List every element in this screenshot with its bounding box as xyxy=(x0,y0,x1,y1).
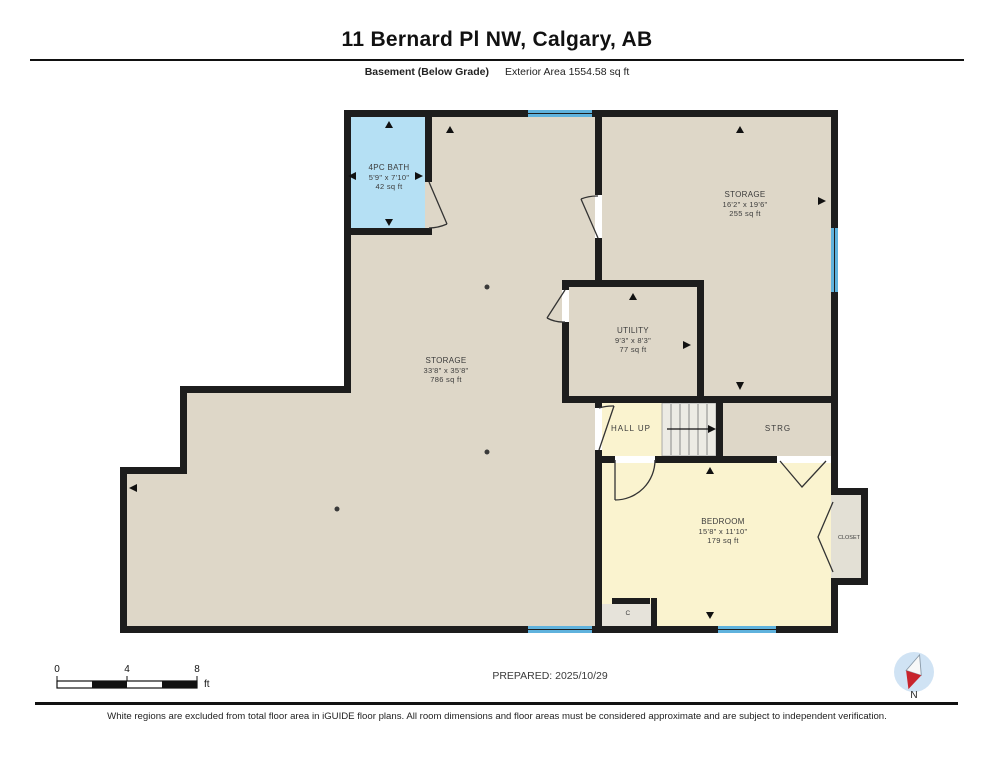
room-dims: 33'8" x 35'8" xyxy=(423,366,468,376)
room-name: STRG xyxy=(765,424,791,434)
compass-icon xyxy=(894,652,934,692)
floorplan-drawing xyxy=(0,0,994,768)
compass-north-label: N xyxy=(906,690,922,701)
prepared-date: PREPARED: 2025/10/29 xyxy=(455,670,645,682)
room-dims: 16'2" x 19'6" xyxy=(722,200,767,210)
room-name: HALL UP xyxy=(611,424,651,434)
scale-unit-label: ft xyxy=(204,679,210,690)
room-area: 255 sq ft xyxy=(722,209,767,219)
room-dims: 5'9" x 7'10" xyxy=(369,173,410,183)
room-label-closet-c: C xyxy=(626,609,631,619)
room-area: 786 sq ft xyxy=(423,375,468,385)
scale-bar xyxy=(57,676,197,688)
room-name: UTILITY xyxy=(615,326,651,336)
room-label-utility: UTILITY 9'3" x 8'3" 77 sq ft xyxy=(615,326,651,355)
room-dims: 15'8" x 11'10" xyxy=(699,527,748,537)
scale-tick-0: 0 xyxy=(54,664,60,675)
room-area: 179 sq ft xyxy=(699,536,748,546)
room-label-closet: CLOSET xyxy=(838,534,860,544)
room-name: STORAGE xyxy=(423,356,468,366)
room-dims: 9'3" x 8'3" xyxy=(615,336,651,346)
room-label-bedroom: BEDROOM 15'8" x 11'10" 179 sq ft xyxy=(699,517,748,546)
floorplan-page: 11 Bernard Pl NW, Calgary, AB Basement (… xyxy=(0,0,994,768)
room-label-storage-main: STORAGE 33'8" x 35'8" 786 sq ft xyxy=(423,356,468,385)
room-area: 42 sq ft xyxy=(369,182,410,192)
room-label-strg: STRG xyxy=(765,424,791,434)
room-name: STORAGE xyxy=(722,190,767,200)
footer-divider xyxy=(35,702,958,705)
room-name: BEDROOM xyxy=(699,517,748,527)
room-label-bath: 4PC BATH 5'9" x 7'10" 42 sq ft xyxy=(369,163,410,192)
room-name: 4PC BATH xyxy=(369,163,410,173)
disclaimer-text: White regions are excluded from total fl… xyxy=(0,711,994,722)
room-name: CLOSET xyxy=(838,534,860,544)
room-area: 77 sq ft xyxy=(615,345,651,355)
room-name: C xyxy=(626,609,631,619)
stairs xyxy=(662,403,716,456)
scale-tick-4: 4 xyxy=(124,664,130,675)
room-label-hall: HALL UP xyxy=(611,424,651,434)
room-label-storage-right: STORAGE 16'2" x 19'6" 255 sq ft xyxy=(722,190,767,219)
scale-tick-8: 8 xyxy=(194,664,200,675)
